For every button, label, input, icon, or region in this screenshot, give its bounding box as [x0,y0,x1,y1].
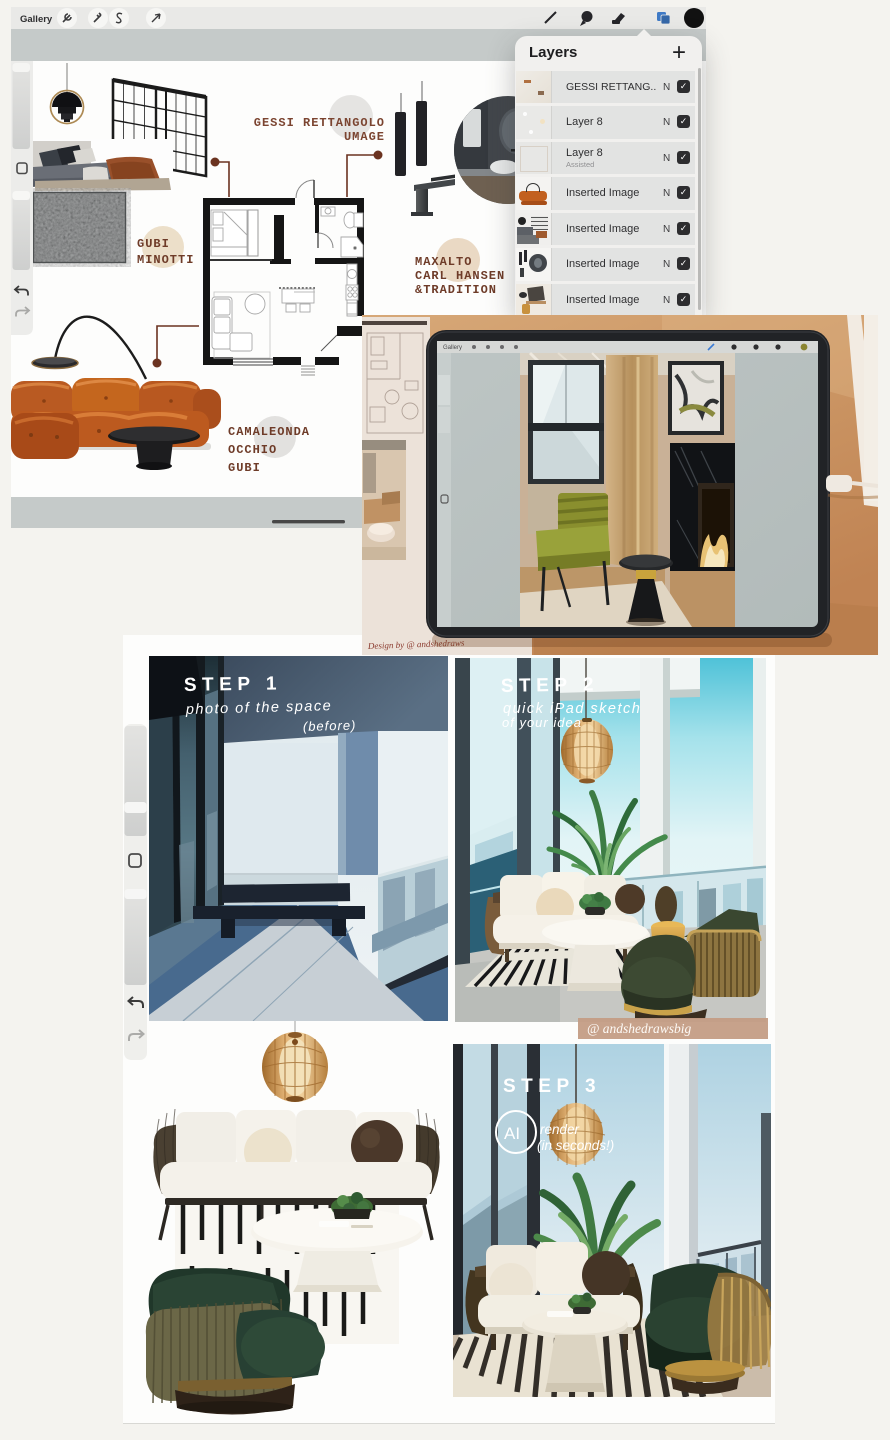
svg-text:GESSI RETTANGOLO: GESSI RETTANGOLO [254,116,385,130]
svg-text:STEP 3: STEP 3 [503,1076,601,1097]
svg-text:(before): (before) [303,718,357,734]
svg-text:Gallery: Gallery [443,345,462,351]
svg-text:@ andshedrawsbig: @ andshedrawsbig [587,1021,692,1036]
svg-text:UMAGE: UMAGE [344,130,385,144]
svg-text:OCCHIO: OCCHIO [228,443,277,457]
svg-text:CAMALEONDA: CAMALEONDA [228,425,310,439]
svg-text:CARL HANSEN: CARL HANSEN [415,269,505,283]
svg-text:of your idea: of your idea [502,715,582,730]
svg-text:Gallery: Gallery [20,14,53,25]
svg-text:AI: AI [504,1124,520,1143]
svg-text:GUBI: GUBI [228,461,261,475]
svg-text:MAXALTO: MAXALTO [415,255,472,269]
svg-text:STEP 2: STEP 2 [501,674,599,697]
svg-text:STEP 1: STEP 1 [184,673,282,696]
svg-text:render: render [540,1122,580,1137]
svg-text:GUBI: GUBI [137,237,170,251]
svg-text:(in seconds!): (in seconds!) [537,1138,614,1153]
svg-text:MINOTTI: MINOTTI [137,253,194,267]
svg-text:&TRADITION: &TRADITION [415,283,497,297]
